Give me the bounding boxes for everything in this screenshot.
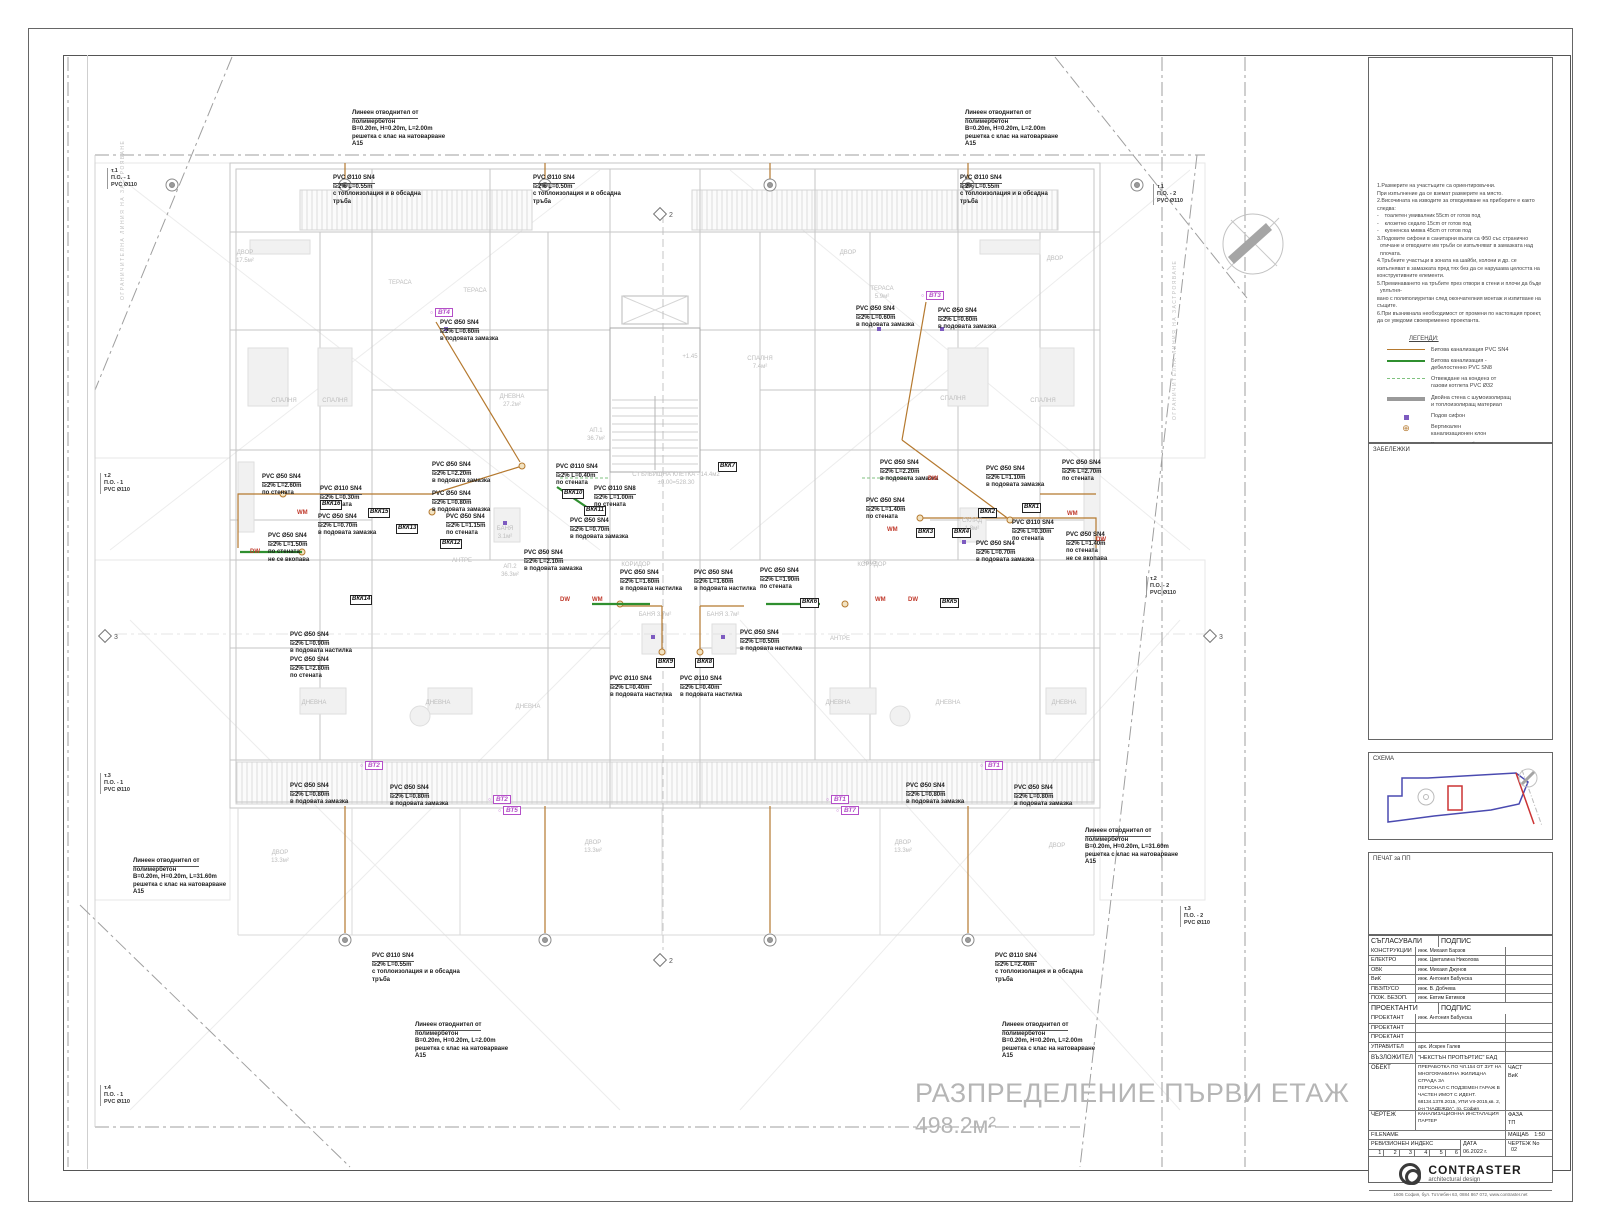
approval-role: ПБЗ/ПУСО (1369, 985, 1416, 993)
stamp-title: ПЕЧАТ за ПП (1369, 853, 1552, 862)
room-label: ДНЕВНА 27.2м² (500, 394, 525, 410)
approval-role: КОНСТРУКЦИИ (1369, 947, 1416, 955)
boundary-line-label: ОГРАНИЧИТЕЛНА ЛИНИЯ НА ЗАСТРОЯВАНЕ (120, 140, 126, 300)
pipe-annotation: Линеен отводнител отполимербетонB=0.20m,… (1002, 1022, 1095, 1061)
vkk-branch-label: ВКК1 (1022, 503, 1041, 513)
room-label: СПАЛНЯ (271, 398, 296, 406)
connection-point-label: т.2П.О. - 2PVC Ø110 (1146, 576, 1176, 597)
date-label: ДАТА (1463, 1141, 1503, 1147)
scale-label: МАЩАБ (1508, 1132, 1529, 1138)
approval-signature-cell (1506, 975, 1552, 983)
legend-swatch-wall (1387, 397, 1425, 401)
floor-siphon-icon (1404, 415, 1409, 420)
appliance-label: DW (1096, 537, 1106, 543)
room-label: ДНЕВНА (936, 700, 961, 708)
object-line: ЧАСТЕН ИМОТ С ИДЕНТ. (1418, 1093, 1503, 1100)
pipe-annotation: Линеен отводнител отполимербетонB=0.20m,… (352, 110, 445, 149)
pipe-annotation: PVC Ø50 SN4i≥2% L=0.50mв подовата настил… (740, 630, 802, 654)
revision-index: 2 (1384, 1150, 1399, 1156)
remarks-box: ЗАБЕЛЕЖКИ (1368, 443, 1553, 740)
sn4-line-icon (1387, 349, 1425, 350)
legend-item: Двойна стена с шумоизолиращ и топлоизоли… (1387, 395, 1552, 409)
pipe-annotation: PVC Ø50 SN4i≥2% L=0.80mв подовата замазк… (432, 491, 490, 515)
remarks-title: ЗАБЕЛЕЖКИ (1369, 444, 1552, 453)
vkk-branch-label: ВКК14 (350, 595, 372, 605)
vkk-branch-label: ВКК12 (440, 539, 462, 549)
designer-row: ПРОЕКТАНТинж. Антония Бабунска (1369, 1014, 1552, 1022)
room-label: СКЛАД 1.8м² (962, 518, 982, 534)
pipe-annotation: PVC Ø50 SN4i≥2% L=0.60mв подовата замазк… (440, 320, 498, 344)
pipe-annotation: PVC Ø50 SN4i≥2% L=0.80mв подовата замазк… (1014, 785, 1072, 809)
room-label: СПАЛНЯ (1030, 398, 1055, 406)
pipe-annotation: PVC Ø50 SN4i≥2% L=1.50mпо стенатане се в… (268, 533, 309, 564)
pipe-annotation: PVC Ø50 SN4i≥2% L=0.80mв подовата замазк… (290, 783, 348, 807)
designer-role: ПРОЕКТАНТ (1369, 1014, 1416, 1022)
room-label: КОРИДОР (621, 562, 650, 570)
vkk-branch-label: ВКК15 (368, 508, 390, 518)
cond-line-icon (1387, 378, 1425, 379)
approval-name: инж. Антония Бабунска (1416, 975, 1506, 983)
designer-role: ПРОЕКТАНТ (1369, 1033, 1416, 1041)
pipe-annotation: PVC Ø110 SN4i≥2% L=0.55mс топлоизолация … (372, 953, 460, 984)
note-line: изпълняват в замазката пред тях без да с… (1377, 266, 1546, 274)
part-label: ЧАСТ (1508, 1065, 1550, 1071)
approval-row: ПБЗ/ПУСОинж. В. Добчева (1369, 984, 1552, 993)
approval-signature-cell (1506, 985, 1552, 993)
legend-label: Отвеждане на конденз от газови котлета P… (1431, 376, 1496, 390)
legend-item: Отвеждане на конденз от газови котлета P… (1387, 376, 1552, 390)
appliance-label: DW (560, 597, 570, 603)
vkk-branch-label: ВКК5 (940, 598, 959, 608)
vt-downpipe-label: ○ВТ1 (980, 762, 1003, 769)
note-line: да се уведоми своевременно проектанта. (1377, 318, 1546, 326)
company-logo-row: CONTRASTER architectural design (1369, 1156, 1552, 1190)
note-line: конструктивните елементи. (1377, 273, 1546, 281)
pipe-annotation: PVC Ø50 SN4i≥2% L=0.80mв подовата замазк… (906, 783, 964, 807)
room-label: +1.45 (682, 354, 697, 362)
approval-name: инж. Евтим Евтимов (1416, 994, 1506, 1002)
pipe-annotation: PVC Ø110 SN4i≥2% L=0.40mв подовата насти… (680, 676, 742, 700)
legend-item: ⊕Вертикален канализационен клон (1387, 424, 1552, 438)
vt-downpipe-label: ○ВТ2 (360, 762, 383, 769)
company-name: CONTRASTER (1428, 1164, 1521, 1176)
part-cell: ЧАСТ ВиК (1506, 1064, 1552, 1110)
designer-signature-cell (1506, 1043, 1552, 1051)
room-label: БАНЯ 3.7м² (707, 612, 740, 620)
designer-signature-cell (1506, 1024, 1552, 1032)
pipe-annotation: PVC Ø50 SN4i≥2% L=2.80mпо стената (290, 657, 329, 681)
title-block-table: СЪГЛАСУВАЛИ ПРОЕКТАНТИ ПОДПИС КОНСТРУКЦИ… (1368, 935, 1553, 1183)
room-label: ДВОР (1047, 256, 1064, 264)
note-line: - кухненска мивка 45cm от готов под (1377, 228, 1546, 236)
connection-point-label: т.3П.О. - 1PVC Ø110 (100, 773, 130, 794)
note-line: 3.Подовите сифони в санитарни възли са Ф… (1377, 236, 1546, 244)
pipe-annotation: PVC Ø50 SN4i≥2% L=2.60mпо стената (262, 474, 301, 498)
approval-role: ВиК (1369, 975, 1416, 983)
phase-cell: ФАЗА ТП (1506, 1111, 1552, 1130)
room-label: ДВОР 13.3м² (271, 850, 289, 866)
room-label: ДНЕВНА (516, 704, 541, 712)
room-label: ДВОР (840, 250, 857, 258)
section-marker: 2 (655, 206, 673, 224)
revision-index: 6 (1446, 1150, 1460, 1156)
drawing-number-cell: ЧЕРТЕЖ No 02 (1506, 1140, 1552, 1156)
general-notes: 1.Размерите на участъците са ориентировъ… (1369, 58, 1552, 326)
signature-header-2: ПОДПИС (1439, 1003, 1552, 1014)
object-label: ОБЕКТ (1369, 1064, 1416, 1110)
drawing-line: ПАРТЕР (1418, 1119, 1503, 1126)
legend-swatch-sn8 (1387, 360, 1425, 362)
object-line: ПРЕРАБОТКА ПО ЧЛ.154 ОТ ЗУТ НА (1418, 1065, 1503, 1072)
room-label: ТЕРАСА (388, 280, 411, 288)
vt-downpipe-label: ○ВТ4 (430, 309, 453, 316)
client-label: ВЪЗЛОЖИТЕЛ (1369, 1052, 1416, 1063)
vkk-branch-label: ВКК10 (562, 489, 584, 499)
legend-label: Вертикален канализационен клон (1431, 424, 1486, 438)
legend: ЛЕГЕНДИ: Битова канализация PVC SN4Битов… (1369, 326, 1552, 450)
legend-item: Битова канализация PVC SN4 (1387, 347, 1552, 354)
note-line: 2.Височината на изводите за отводняване … (1377, 198, 1546, 206)
pipe-annotation: PVC Ø110 SN4i≥2% L=0.30mпо стената (1012, 520, 1054, 544)
object-line: 68134.1378.2015, УПИ VII-2015,кв. 2, (1418, 1100, 1503, 1107)
appliance-label: WM (875, 597, 886, 603)
pipe-annotation: PVC Ø110 SN4i≥2% L=0.40mв подовата насти… (610, 676, 672, 700)
note-line: - клозетно седало 15cm от готов под (1377, 221, 1546, 229)
room-label: ТЕРАСА (463, 288, 486, 296)
approval-role: ОВК (1369, 966, 1416, 974)
approval-row: КОНСТРУКЦИИинж. Михаил Барзов (1369, 947, 1552, 955)
note-line: 6.При възникнала необходимост от промени… (1377, 311, 1546, 319)
site-schema-drawing (1376, 766, 1546, 830)
approval-row: ЕЛЕКТРОинж. Цветалина Николова (1369, 955, 1552, 964)
schema-box: СХЕМА (1368, 752, 1553, 840)
vkk-branch-label: ВКК3 (916, 528, 935, 538)
pipe-annotation: PVC Ø50 SN4i≥2% L=0.80mв подовата замазк… (390, 785, 448, 809)
approval-signature-cell (1506, 956, 1552, 964)
pipe-annotation: PVC Ø50 SN4i≥2% L=0.60mв подовата замазк… (938, 308, 996, 332)
scale-cell: МАЩАБ 1:50 (1506, 1131, 1552, 1140)
room-label: ДНЕВНА (426, 700, 451, 708)
pipe-annotation: PVC Ø50 SN4i≥2% L=1.60mв подовата настил… (620, 570, 682, 594)
company-address: 1606 София, бул. Тотлебен 63, 0884 867 0… (1369, 1190, 1552, 1199)
legend-swatch-branch: ⊕ (1387, 426, 1425, 431)
vkk-branch-label: ВКК9 (656, 658, 675, 668)
designer-row: ПРОЕКТАНТ (1369, 1023, 1552, 1032)
appliance-label: WM (592, 597, 603, 603)
date-value: 06.2022 г. (1463, 1149, 1503, 1155)
pipe-annotation: PVC Ø50 SN4i≥2% L=1.90mпо стената (760, 568, 799, 592)
legend-item: Подов сифон (1387, 413, 1552, 420)
approval-name: инж. Михаил Джунов (1416, 966, 1506, 974)
room-label: ДНЕВНА (1052, 700, 1077, 708)
schema-title: СХЕМА (1369, 753, 1552, 762)
designer-signature-cell (1506, 1033, 1552, 1041)
vkk-branch-label: ВКК7 (718, 462, 737, 472)
company-tagline: architectural design (1428, 1177, 1521, 1183)
approval-row: ОВКинж. Михаил Джунов (1369, 965, 1552, 974)
room-label: СТЪЛБИЩНА КЛЕТКА - 14.4м2 ±0.00=528.30 (632, 472, 719, 488)
legend-swatch-siphon (1387, 415, 1425, 420)
legend-item: Битова канализация - дебелостенно PVC SN… (1387, 358, 1552, 372)
vkk-branch-label: ВКК13 (396, 524, 418, 534)
legend-swatch-cond (1387, 378, 1425, 379)
note-line: вано с полиполиуретан след окончателния … (1377, 296, 1546, 304)
appliance-label: DW (928, 476, 938, 482)
vt-downpipe-label: ○ВТ2 (488, 796, 511, 803)
legend-swatch-sn4 (1387, 349, 1425, 350)
approval-signature-cell (1506, 947, 1552, 955)
note-line: същите. (1377, 303, 1546, 311)
pipe-annotation: PVC Ø50 SN4i≥2% L=1.15mпо стената (446, 514, 485, 538)
note-line: При изпълнение да се вземат размерите на… (1377, 191, 1546, 199)
designer-signature-cell (1506, 1014, 1552, 1022)
approval-name: инж. Михаил Барзов (1416, 947, 1506, 955)
room-label: ТЕРАСА 5.9м² (870, 286, 893, 302)
pipe-annotation: PVC Ø110 SN4i≥2% L=0.40mпо стената (556, 464, 598, 488)
room-label: ДВОР 17.5м² (236, 250, 254, 266)
appliance-label: DW (908, 597, 918, 603)
note-line: отичане и отводните им тръби се изпълняв… (1377, 243, 1546, 251)
section-marker: 3 (1205, 628, 1223, 646)
part-value: ВиК (1508, 1073, 1550, 1079)
date-cell: ДАТА 06.2022 г. (1461, 1140, 1506, 1156)
note-line: - тоалетен умивалник 55cm от готов под (1377, 213, 1546, 221)
pipe-annotation: PVC Ø50 SN4i≥2% L=2.70mпо стената (1062, 460, 1101, 484)
pipe-annotation: PVC Ø50 SN4i≥2% L=2.20mв подовата замазк… (432, 462, 490, 486)
pipe-annotation: PVC Ø110 SN4i≥2% L=2.40mс топлоизолация … (995, 953, 1083, 984)
revision-label: РЕВИЗИОНЕН ИНДЕКС (1369, 1140, 1460, 1149)
approval-signature-cell (1506, 966, 1552, 974)
double-wall-icon (1387, 397, 1425, 401)
legend-label: Двойна стена с шумоизолиращ и топлоизоли… (1431, 395, 1511, 409)
approval-name: инж. В. Добчева (1416, 985, 1506, 993)
boundary-line-label: ОГРАНИЧИТЕЛНА ЛИНИЯ НА ЗАСТРОЯВАНЕ (1172, 260, 1178, 420)
vkk-branch-label: ВКК8 (695, 658, 714, 668)
plan-area-value: 498.2м² (915, 1112, 996, 1139)
designer-name (1416, 1024, 1506, 1032)
object-line: МНОГОФАМИЛНА ЖИЛИЩНА СГРАДА ЗА (1418, 1072, 1503, 1086)
vt-downpipe-label: ○ВТ1 (826, 796, 849, 803)
room-label: БАНЯ 3.1м² (497, 526, 513, 542)
section-marker: 2 (655, 952, 673, 970)
connection-point-label: т.2П.О. - 1PVC Ø110 (100, 473, 130, 494)
pipe-annotation: PVC Ø50 SN4i≥2% L=1.10mв подовата замазк… (986, 466, 1044, 490)
approval-signature-cell (1506, 994, 1552, 1002)
note-line: 1.Размерите на участъците са ориентировъ… (1377, 183, 1546, 191)
approval-role: ПОЖ. БЕЗОП. (1369, 994, 1416, 1002)
room-label: СПАЛНЯ (322, 398, 347, 406)
drawing-number-value: 02 (1511, 1147, 1517, 1153)
note-line: следва: (1377, 206, 1546, 214)
connection-point-label: т.3П.О. - 2PVC Ø110 (1180, 906, 1210, 927)
approval-row: ВиКинж. Антония Бабунска (1369, 974, 1552, 983)
room-label: АП.2 36.3м² (501, 564, 519, 580)
note-line: уплътня- (1377, 288, 1546, 296)
designer-name: арх. Искрен Галев (1416, 1043, 1506, 1051)
phase-value: ТП (1508, 1120, 1550, 1126)
room-label: АНТРЕ (830, 636, 850, 644)
room-label: КОРИДОР (857, 562, 886, 570)
designer-name: инж. Антония Бабунска (1416, 1014, 1506, 1022)
legend-title: ЛЕГЕНДИ: (1409, 336, 1552, 342)
room-label: АНТРЕ (452, 558, 472, 566)
room-label: ДНЕВНА (302, 700, 327, 708)
pipe-annotation: PVC Ø110 SN4i≥2% L=0.55mс топлоизолация … (960, 175, 1048, 206)
revision-index: 4 (1415, 1150, 1430, 1156)
room-label: ДВОР (1049, 843, 1066, 851)
drawing-sheet: Линеен отводнител отполимербетонB=0.20m,… (0, 0, 1600, 1229)
pipe-annotation: PVC Ø50 SN4i≥2% L=0.90mв подовата настил… (290, 632, 352, 656)
revision-index: 5 (1430, 1150, 1445, 1156)
object-line: р-н "НАДЕЖДА", гр. София (1418, 1107, 1503, 1110)
drawing-value: КАНАЛИЗАЦИОННА ИНСТАЛАЦИЯПАРТЕР (1416, 1111, 1506, 1130)
pipe-annotation: Линеен отводнител отполимербетонB=0.20m,… (965, 110, 1058, 149)
appliance-label: DW (250, 549, 260, 555)
room-label: ДНЕВНА (826, 700, 851, 708)
approval-name: инж. Цветалина Николова (1416, 956, 1506, 964)
scale-value: 1:50 (1534, 1132, 1545, 1138)
filename-label: FILENAME (1369, 1131, 1506, 1140)
legend-label: Подов сифон (1431, 413, 1465, 420)
vkk-branch-label: ВКК6 (800, 598, 819, 608)
contraster-logo-icon (1399, 1163, 1421, 1185)
designer-role: ПРОЕКТАНТ (1369, 1024, 1416, 1032)
approval-role: ЕЛЕКТРО (1369, 956, 1416, 964)
vkk-branch-label: ВКК2 (978, 508, 997, 518)
revision-index: 3 (1400, 1150, 1415, 1156)
object-line: ПЕРСОНАЛ С ПОДЗЕМЕН ГАРАЖ В (1418, 1086, 1503, 1093)
approval-row: ПОЖ. БЕЗОП.инж. Евтим Евтимов (1369, 993, 1552, 1002)
pipe-annotation: PVC Ø50 SN4i≥2% L=0.60mв подовата замазк… (856, 306, 914, 330)
pipe-annotation: PVC Ø50 SN4i≥2% L=0.70mв подовата замазк… (976, 541, 1034, 565)
notes-and-legend-box: 1.Размерите на участъците са ориентировъ… (1368, 57, 1553, 443)
note-line: 5.Преминаването на тръбите през отвори в… (1377, 281, 1546, 289)
signature-header: ПОДПИС (1439, 936, 1552, 947)
appliance-label: WM (887, 527, 898, 533)
phase-label: ФАЗА (1508, 1112, 1550, 1118)
revision-index-cells: 123456 (1369, 1149, 1460, 1156)
designer-row: ПРОЕКТАНТ (1369, 1032, 1552, 1041)
object-value: ПРЕРАБОТКА ПО ЧЛ.154 ОТ ЗУТ НАМНОГОФАМИЛ… (1416, 1064, 1506, 1110)
sn8-line-icon (1387, 360, 1425, 362)
pipe-annotation: Линеен отводнител отполимербетонB=0.20m,… (415, 1022, 508, 1061)
room-label: ДВОР 13.3м² (584, 840, 602, 856)
plan-title: РАЗПРЕДЕЛЕНИЕ ПЪРВИ ЕТАЖ (915, 1078, 1349, 1109)
room-label: АП.1 36.7м² (587, 428, 605, 444)
appliance-label: WM (1067, 511, 1078, 517)
pipe-annotation: Линеен отводнител отполимербетонB=0.20m,… (1085, 828, 1178, 867)
designer-role: УПРАВИТЕЛ (1369, 1043, 1416, 1051)
note-line: 4.Тръбните участъци в зоната на шайби, к… (1377, 258, 1546, 266)
pipe-annotation: PVC Ø110 SN4i≥2% L=0.55mс топлоизолация … (333, 175, 421, 206)
vt-downpipe-label: ○ВТ3 (921, 292, 944, 299)
revision-index: 1 (1369, 1150, 1384, 1156)
room-label: ДВОР 13.3м² (894, 840, 912, 856)
designer-name (1416, 1033, 1506, 1041)
client-signature-cell (1506, 1052, 1552, 1063)
designer-row: УПРАВИТЕЛарх. Искрен Галев (1369, 1042, 1552, 1051)
pipe-annotation: PVC Ø50 SN4i≥2% L=2.10mв подовата замазк… (524, 550, 582, 574)
stamp-box: ПЕЧАТ за ПП (1368, 852, 1553, 935)
drawing-line: КАНАЛИЗАЦИОННА ИНСТАЛАЦИЯ (1418, 1112, 1503, 1119)
revision-cell: РЕВИЗИОНЕН ИНДЕКС 123456 (1369, 1140, 1461, 1156)
pipe-annotation: PVC Ø110 SN4i≥2% L=0.50mс топлоизолация … (533, 175, 621, 206)
vkk-branch-label: ВКК11 (584, 506, 606, 516)
pipe-annotation: PVC Ø50 SN4i≥2% L=0.70mв подовата замазк… (570, 518, 628, 542)
pipe-annotation: PVC Ø50 SN4i≥2% L=1.40mпо стената (866, 498, 905, 522)
room-label: СПАЛНЯ (940, 396, 965, 404)
room-label: БАНЯ 3.7м² (639, 612, 672, 620)
riser-branch-icon: ⊕ (1402, 426, 1410, 431)
legend-label: Битова канализация - дебелостенно PVC SN… (1431, 358, 1492, 372)
approvals-header: СЪГЛАСУВАЛИ ПРОЕКТАНТИ (1369, 936, 1439, 947)
pipe-annotation: PVC Ø50 SN4i≥2% L=1.60mв подовата настил… (694, 570, 756, 594)
designers-header: ПРОЕКТАНТИ (1369, 1003, 1439, 1014)
drawing-label: ЧЕРТЕЖ (1369, 1111, 1416, 1130)
vt-downpipe-label: ○ВТ7 (836, 807, 859, 814)
client-value: "НЕКСТЪН ПРОПЪРТИС" ЕАД (1416, 1052, 1506, 1063)
connection-point-label: т.1П.О. - 2PVC Ø110 (1153, 184, 1183, 205)
vkk-branch-label: ВКК16 (320, 500, 342, 510)
room-label: СПАЛНЯ 7.4м² (747, 356, 772, 372)
appliance-label: WM (297, 510, 308, 516)
legend-label: Битова канализация PVC SN4 (1431, 347, 1508, 354)
pipe-annotation: Линеен отводнител отполимербетонB=0.20m,… (133, 858, 226, 897)
connection-point-label: т.4П.О. - 1PVC Ø110 (100, 1085, 130, 1106)
section-marker: 3 (100, 628, 118, 646)
vt-downpipe-label: ○ВТ5 (498, 807, 521, 814)
plan-annotation-layer: Линеен отводнител отполимербетонB=0.20m,… (0, 0, 1600, 1229)
